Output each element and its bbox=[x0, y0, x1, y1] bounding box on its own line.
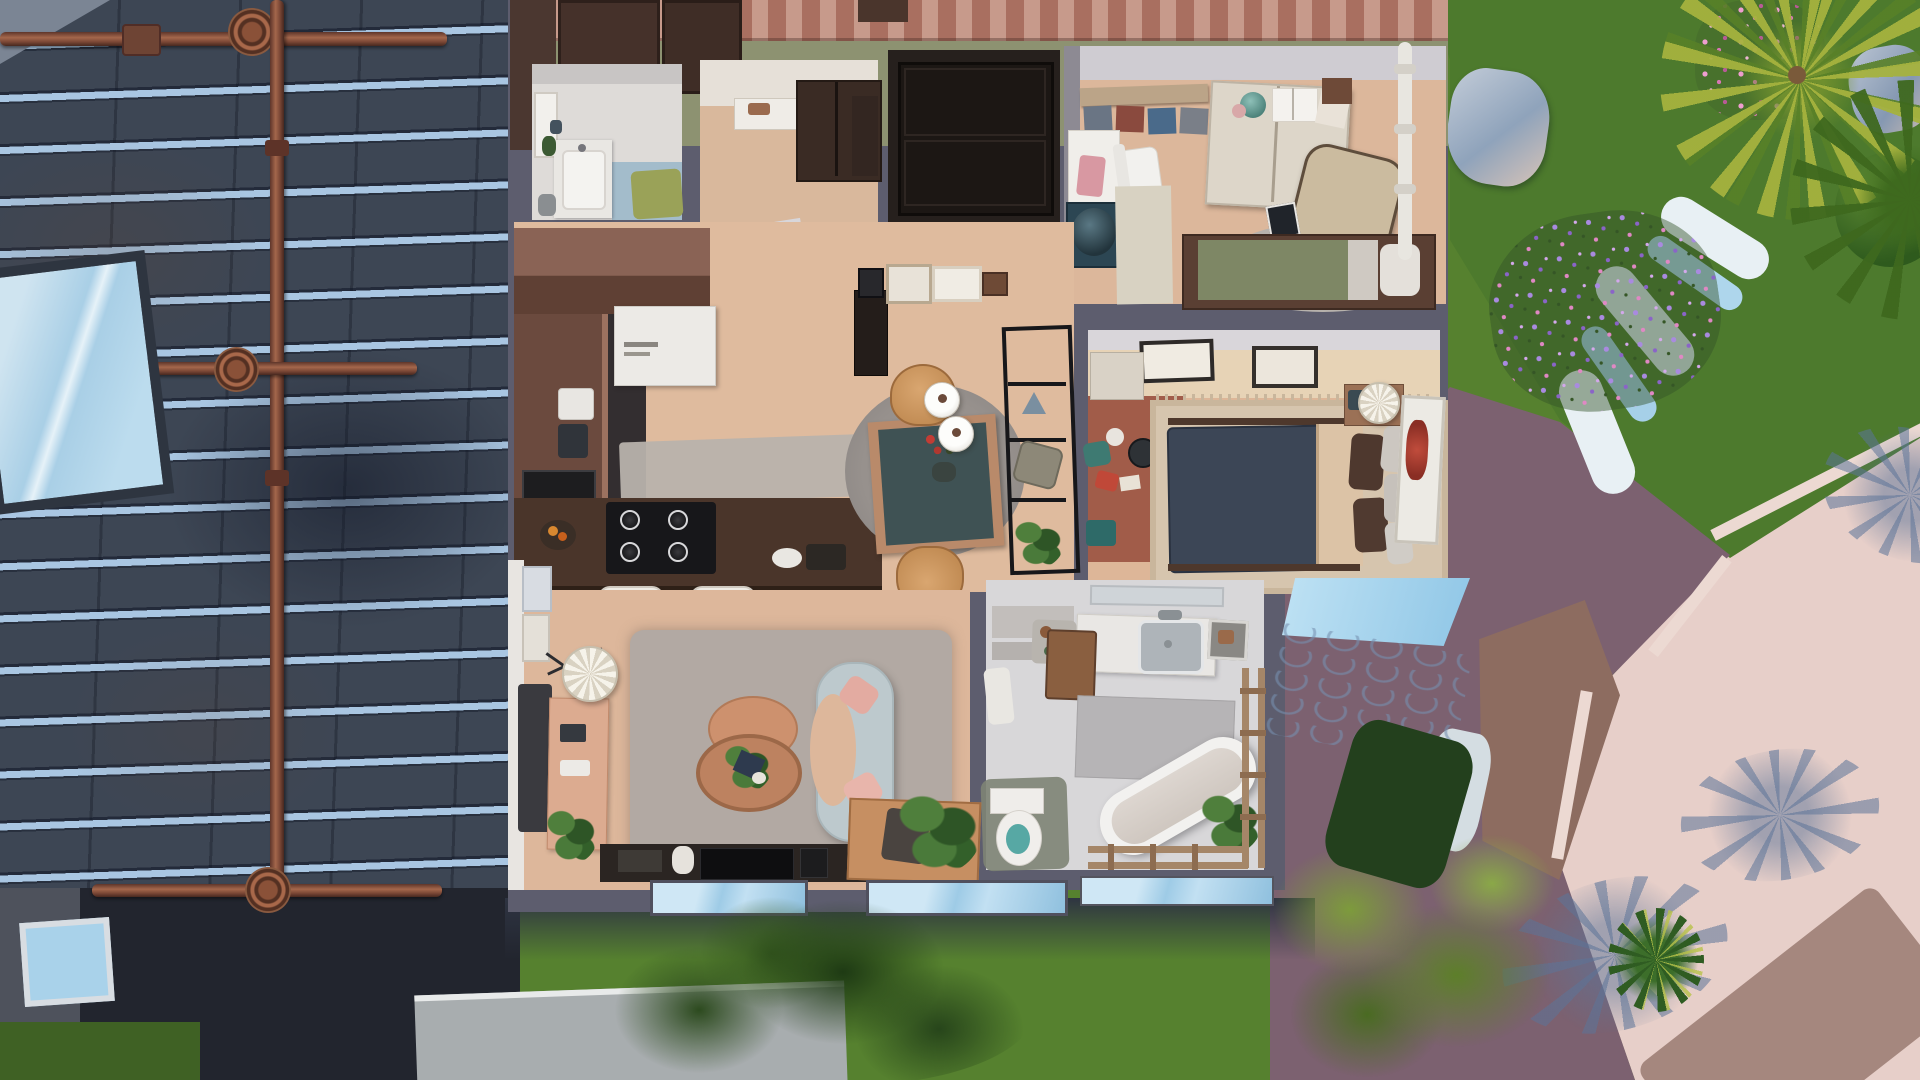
roof-pipe-top bbox=[0, 32, 447, 46]
media-plant-pot[interactable] bbox=[672, 846, 694, 874]
bath-window-ledge bbox=[1090, 585, 1224, 607]
pendant-cord-1 bbox=[938, 394, 947, 403]
gallery-frame-2 bbox=[886, 264, 932, 304]
pipe-collar-2 bbox=[265, 470, 289, 486]
kid-desk-artwork bbox=[1076, 155, 1106, 197]
bath-ladder-bottom-rung-1 bbox=[1108, 844, 1114, 870]
kitchen-coffee-machine[interactable] bbox=[558, 424, 588, 458]
etagere-shelf-2 bbox=[1008, 438, 1066, 442]
roof-pipe-flange-bottom bbox=[245, 867, 291, 913]
hall-bench-deco bbox=[748, 103, 770, 115]
rail-collar-2 bbox=[1394, 124, 1416, 134]
bath-shelf-left-2 bbox=[992, 642, 1032, 660]
master-bed-rail-bottom bbox=[1168, 564, 1360, 571]
bathroom-small-faucet bbox=[578, 144, 586, 152]
kitchen-sink[interactable] bbox=[558, 388, 594, 420]
living-desk-keyboard bbox=[560, 760, 590, 776]
bath-hamper[interactable] bbox=[1045, 629, 1097, 701]
master-white-pot bbox=[1106, 428, 1124, 446]
kid-art-print-3 bbox=[1148, 108, 1177, 135]
bath-plant[interactable] bbox=[1198, 788, 1262, 854]
living-floor-lamp[interactable] bbox=[562, 646, 618, 702]
bath-ladder-rail-1 bbox=[1242, 668, 1249, 868]
master-desk-chair[interactable] bbox=[1082, 440, 1112, 468]
kid-art-print-4 bbox=[1179, 107, 1208, 134]
bath-toilet-lid-deco bbox=[1006, 824, 1030, 854]
bathroom-small-plant[interactable] bbox=[542, 136, 556, 156]
kid-runner-rug bbox=[1115, 186, 1173, 305]
kid-aquarium-bowl[interactable] bbox=[1072, 208, 1116, 256]
rail-collar-3 bbox=[1394, 184, 1416, 194]
kid-room-top-band bbox=[1064, 46, 1446, 80]
bath-ladder-rung-2 bbox=[1240, 730, 1266, 736]
roof-skylight-large bbox=[0, 250, 174, 515]
kid-art-print-1 bbox=[1083, 105, 1112, 132]
master-dresser[interactable] bbox=[1090, 352, 1144, 400]
hall-door[interactable] bbox=[852, 96, 878, 176]
etagere-shelf-3 bbox=[1008, 498, 1066, 502]
island-tray bbox=[806, 544, 846, 570]
burner-4 bbox=[668, 542, 688, 562]
kid-box bbox=[1322, 78, 1352, 104]
bathroom-small-hamper[interactable] bbox=[538, 194, 556, 216]
roof-pipe-joint-top bbox=[122, 24, 161, 56]
bath-soap bbox=[1218, 630, 1234, 644]
media-speaker[interactable] bbox=[800, 848, 828, 878]
fridge-handle-1 bbox=[624, 342, 658, 347]
kid-open-book[interactable] bbox=[1272, 88, 1318, 122]
pipe-collar-1 bbox=[265, 140, 289, 156]
master-lamp[interactable] bbox=[1358, 382, 1400, 424]
bench-plant[interactable] bbox=[894, 786, 982, 874]
storage-panel-bottom bbox=[904, 140, 1046, 206]
bath-ladder-rung-3 bbox=[1240, 772, 1266, 778]
rail-collar-1 bbox=[1394, 64, 1416, 74]
fruit-orange-1 bbox=[548, 526, 558, 536]
kid-porch-rail bbox=[1398, 42, 1412, 260]
media-tv[interactable] bbox=[700, 848, 794, 880]
gallery-frame-1 bbox=[858, 268, 884, 298]
kitchen-runner-rug bbox=[619, 433, 881, 504]
agave-plant[interactable] bbox=[1608, 908, 1704, 1012]
roof-pipe-flange-mid bbox=[214, 347, 259, 392]
pendant-cord-2 bbox=[952, 428, 961, 437]
bath-sink-drain bbox=[1164, 640, 1172, 648]
master-art-1 bbox=[1139, 339, 1214, 384]
bathroom-small-topwall bbox=[532, 64, 682, 84]
coffee-table-bowl bbox=[752, 772, 766, 784]
terrace-door-3[interactable] bbox=[858, 0, 908, 22]
bathroom-small-deco bbox=[550, 120, 562, 134]
master-teal-basket[interactable] bbox=[1086, 520, 1116, 546]
bath-ladder-rail-2 bbox=[1258, 668, 1265, 868]
burner-1 bbox=[620, 510, 640, 530]
living-desk-plant[interactable] bbox=[544, 804, 598, 864]
stage bbox=[0, 0, 1920, 1080]
etagere-shelf-1 bbox=[1008, 382, 1066, 386]
etagere-plant[interactable] bbox=[1012, 516, 1064, 568]
kid-bed-blanket bbox=[1198, 240, 1348, 300]
bath-sink[interactable] bbox=[1138, 620, 1204, 674]
master-bed-duvet[interactable] bbox=[1167, 425, 1326, 574]
fridge-handle-2 bbox=[624, 352, 650, 356]
roof-skylight-small bbox=[19, 917, 115, 1007]
island-plate bbox=[772, 548, 802, 568]
master-papers bbox=[1119, 475, 1141, 492]
storage-panel-top bbox=[904, 68, 1046, 136]
bath-ladder-bottom-rung-3 bbox=[1192, 844, 1198, 870]
roof-pipe-vertical bbox=[270, 0, 284, 888]
kid-globe-base bbox=[1232, 104, 1246, 118]
media-books bbox=[618, 850, 662, 872]
master-art-2 bbox=[1252, 346, 1318, 388]
living-desk-laptop bbox=[560, 724, 586, 742]
kitchen-upper-cabinets[interactable] bbox=[514, 228, 710, 314]
street-tree-dark bbox=[555, 896, 1035, 1080]
piano-console[interactable] bbox=[854, 290, 888, 376]
living-wall-frame-1 bbox=[522, 566, 552, 612]
bathroom-small-basin[interactable] bbox=[562, 150, 606, 210]
bath-ladder-rung-1 bbox=[1240, 688, 1266, 694]
palm-trunk-top bbox=[1788, 66, 1806, 84]
grass-strip-bottom-left bbox=[0, 1022, 200, 1080]
bath-ladder-rung-4 bbox=[1240, 814, 1266, 820]
bath-faucet bbox=[1158, 610, 1182, 620]
burner-3 bbox=[620, 542, 640, 562]
kid-bed-sheet bbox=[1348, 240, 1378, 300]
fruit-orange-2 bbox=[558, 532, 567, 541]
hall-wardrobe-gap bbox=[835, 82, 838, 176]
kid-art-print-2 bbox=[1116, 106, 1145, 133]
bath-ladder-bottom-rung-2 bbox=[1150, 844, 1156, 870]
burner-2 bbox=[668, 510, 688, 530]
roof-pipe-flange-top bbox=[228, 8, 276, 56]
bathroom-small-green-mat bbox=[630, 168, 683, 219]
gallery-frame-4 bbox=[982, 272, 1008, 296]
kid-book-spine bbox=[1292, 88, 1294, 120]
gallery-frame-3 bbox=[932, 266, 982, 302]
